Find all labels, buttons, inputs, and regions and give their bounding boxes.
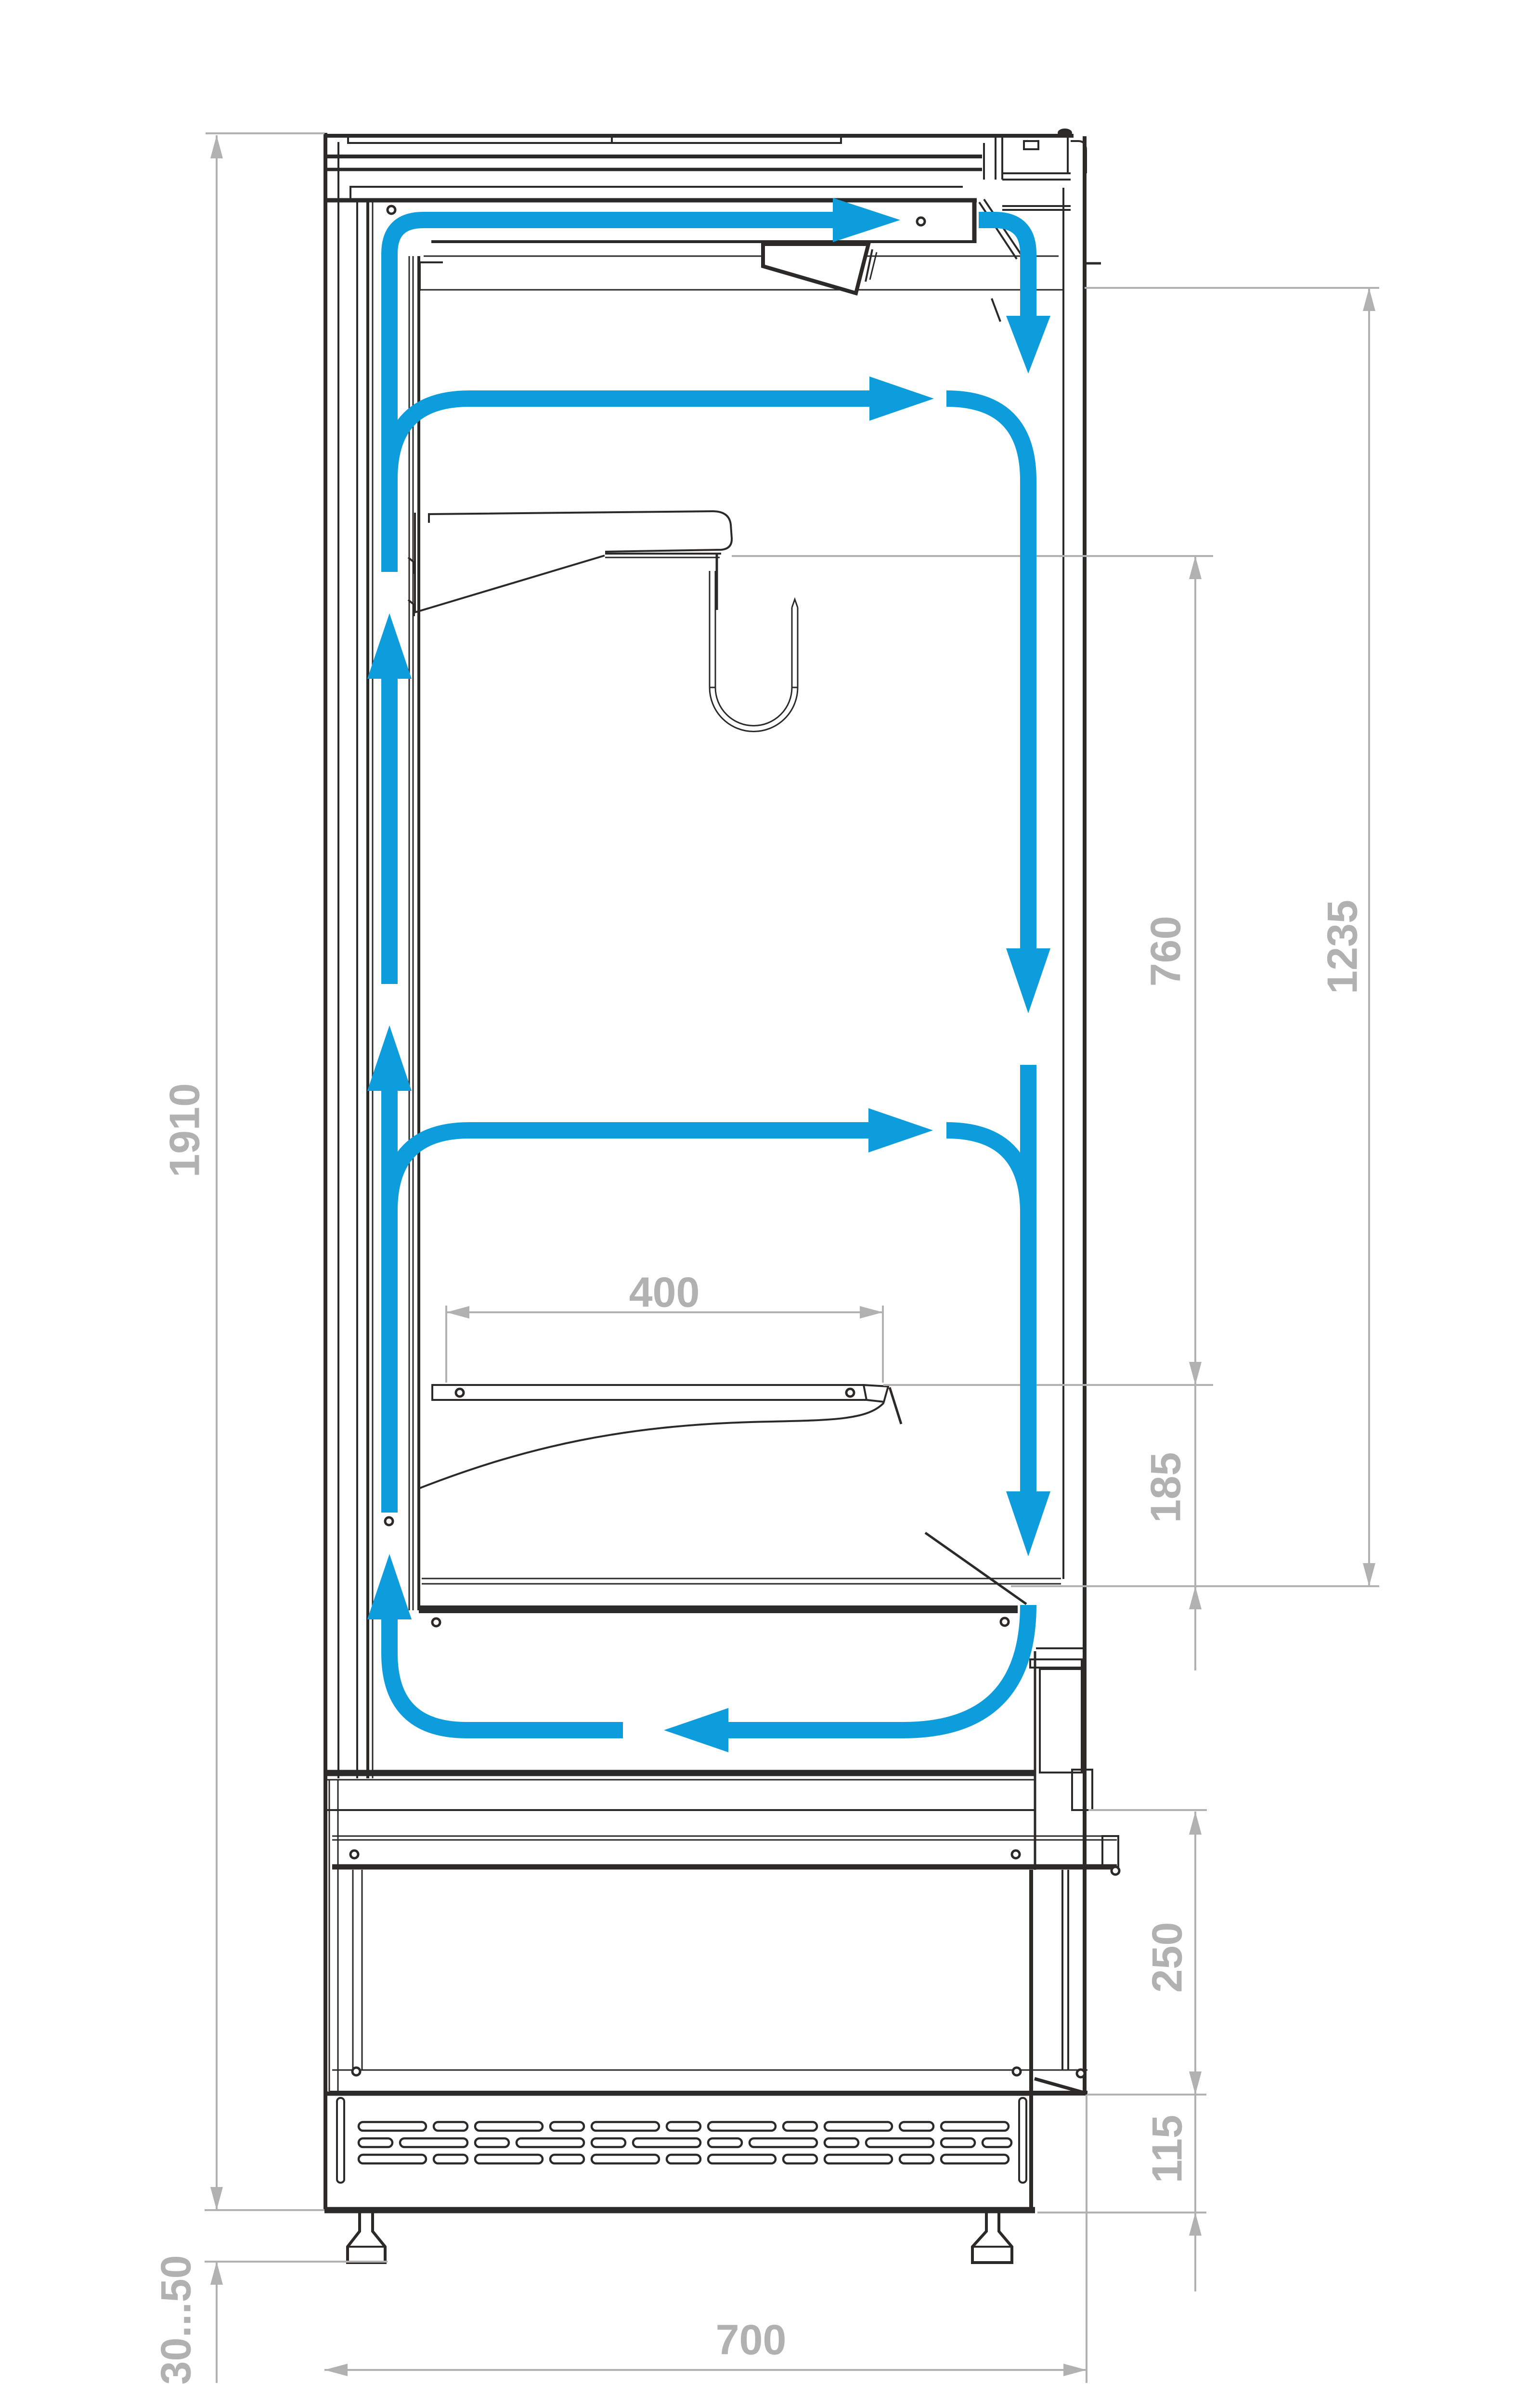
svg-text:115: 115 (1143, 2115, 1191, 2183)
svg-text:30...50: 30...50 (152, 2255, 200, 2384)
svg-text:760: 760 (1142, 916, 1190, 987)
svg-text:1910: 1910 (161, 1083, 208, 1178)
svg-text:1235: 1235 (1319, 900, 1366, 994)
svg-text:400: 400 (629, 1268, 700, 1316)
svg-text:700: 700 (716, 2316, 787, 2364)
svg-text:250: 250 (1143, 1922, 1191, 1993)
svg-text:185: 185 (1142, 1452, 1190, 1523)
